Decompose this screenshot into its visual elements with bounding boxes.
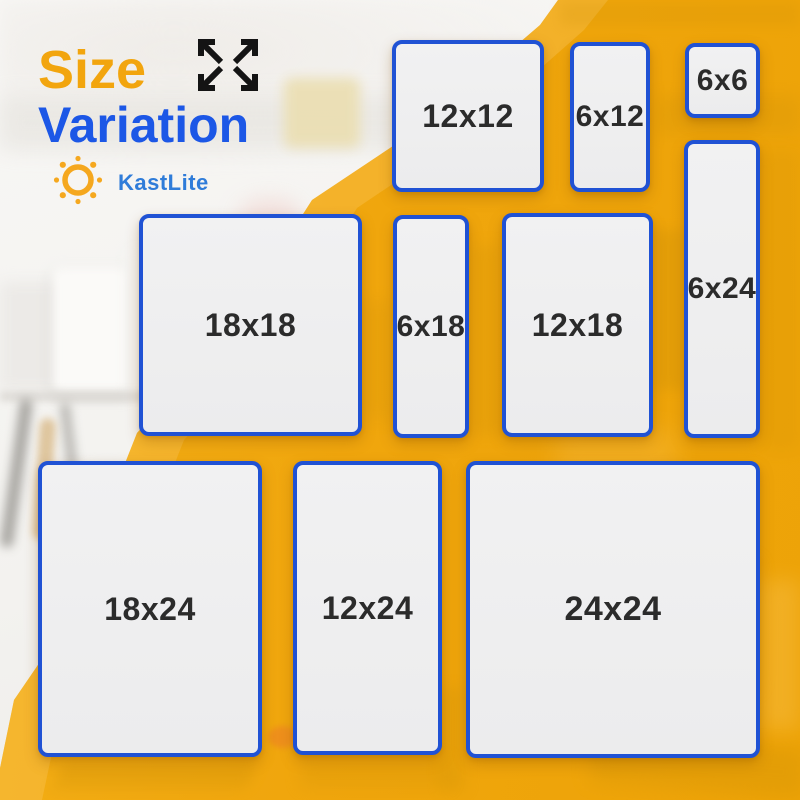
size-panel-6x6: 6x6 (685, 43, 760, 118)
size-panel-18x18: 18x18 (139, 214, 362, 436)
size-label: 24x24 (564, 590, 661, 629)
size-panel-6x18: 6x18 (393, 215, 469, 438)
size-label: 6x24 (688, 272, 757, 306)
size-label: 18x18 (205, 307, 296, 344)
size-panel-24x24: 24x24 (466, 461, 760, 758)
size-panel-6x12: 6x12 (570, 42, 650, 192)
size-panel-6x24: 6x24 (684, 140, 760, 438)
size-panel-18x24: 18x24 (38, 461, 262, 757)
size-panels-grid: 12x126x126x66x2418x186x1812x1818x2412x24… (0, 0, 800, 800)
size-label: 12x18 (532, 307, 623, 344)
size-panel-12x24: 12x24 (293, 461, 442, 755)
infographic-canvas: Size Variation KastLite (0, 0, 800, 800)
size-panel-12x12: 12x12 (392, 40, 544, 192)
size-label: 6x12 (576, 100, 645, 134)
size-label: 6x18 (397, 310, 466, 344)
size-label: 12x24 (322, 590, 413, 627)
size-panel-12x18: 12x18 (502, 213, 653, 437)
size-label: 18x24 (104, 591, 195, 628)
size-label: 12x12 (422, 98, 513, 135)
size-label: 6x6 (697, 64, 749, 98)
